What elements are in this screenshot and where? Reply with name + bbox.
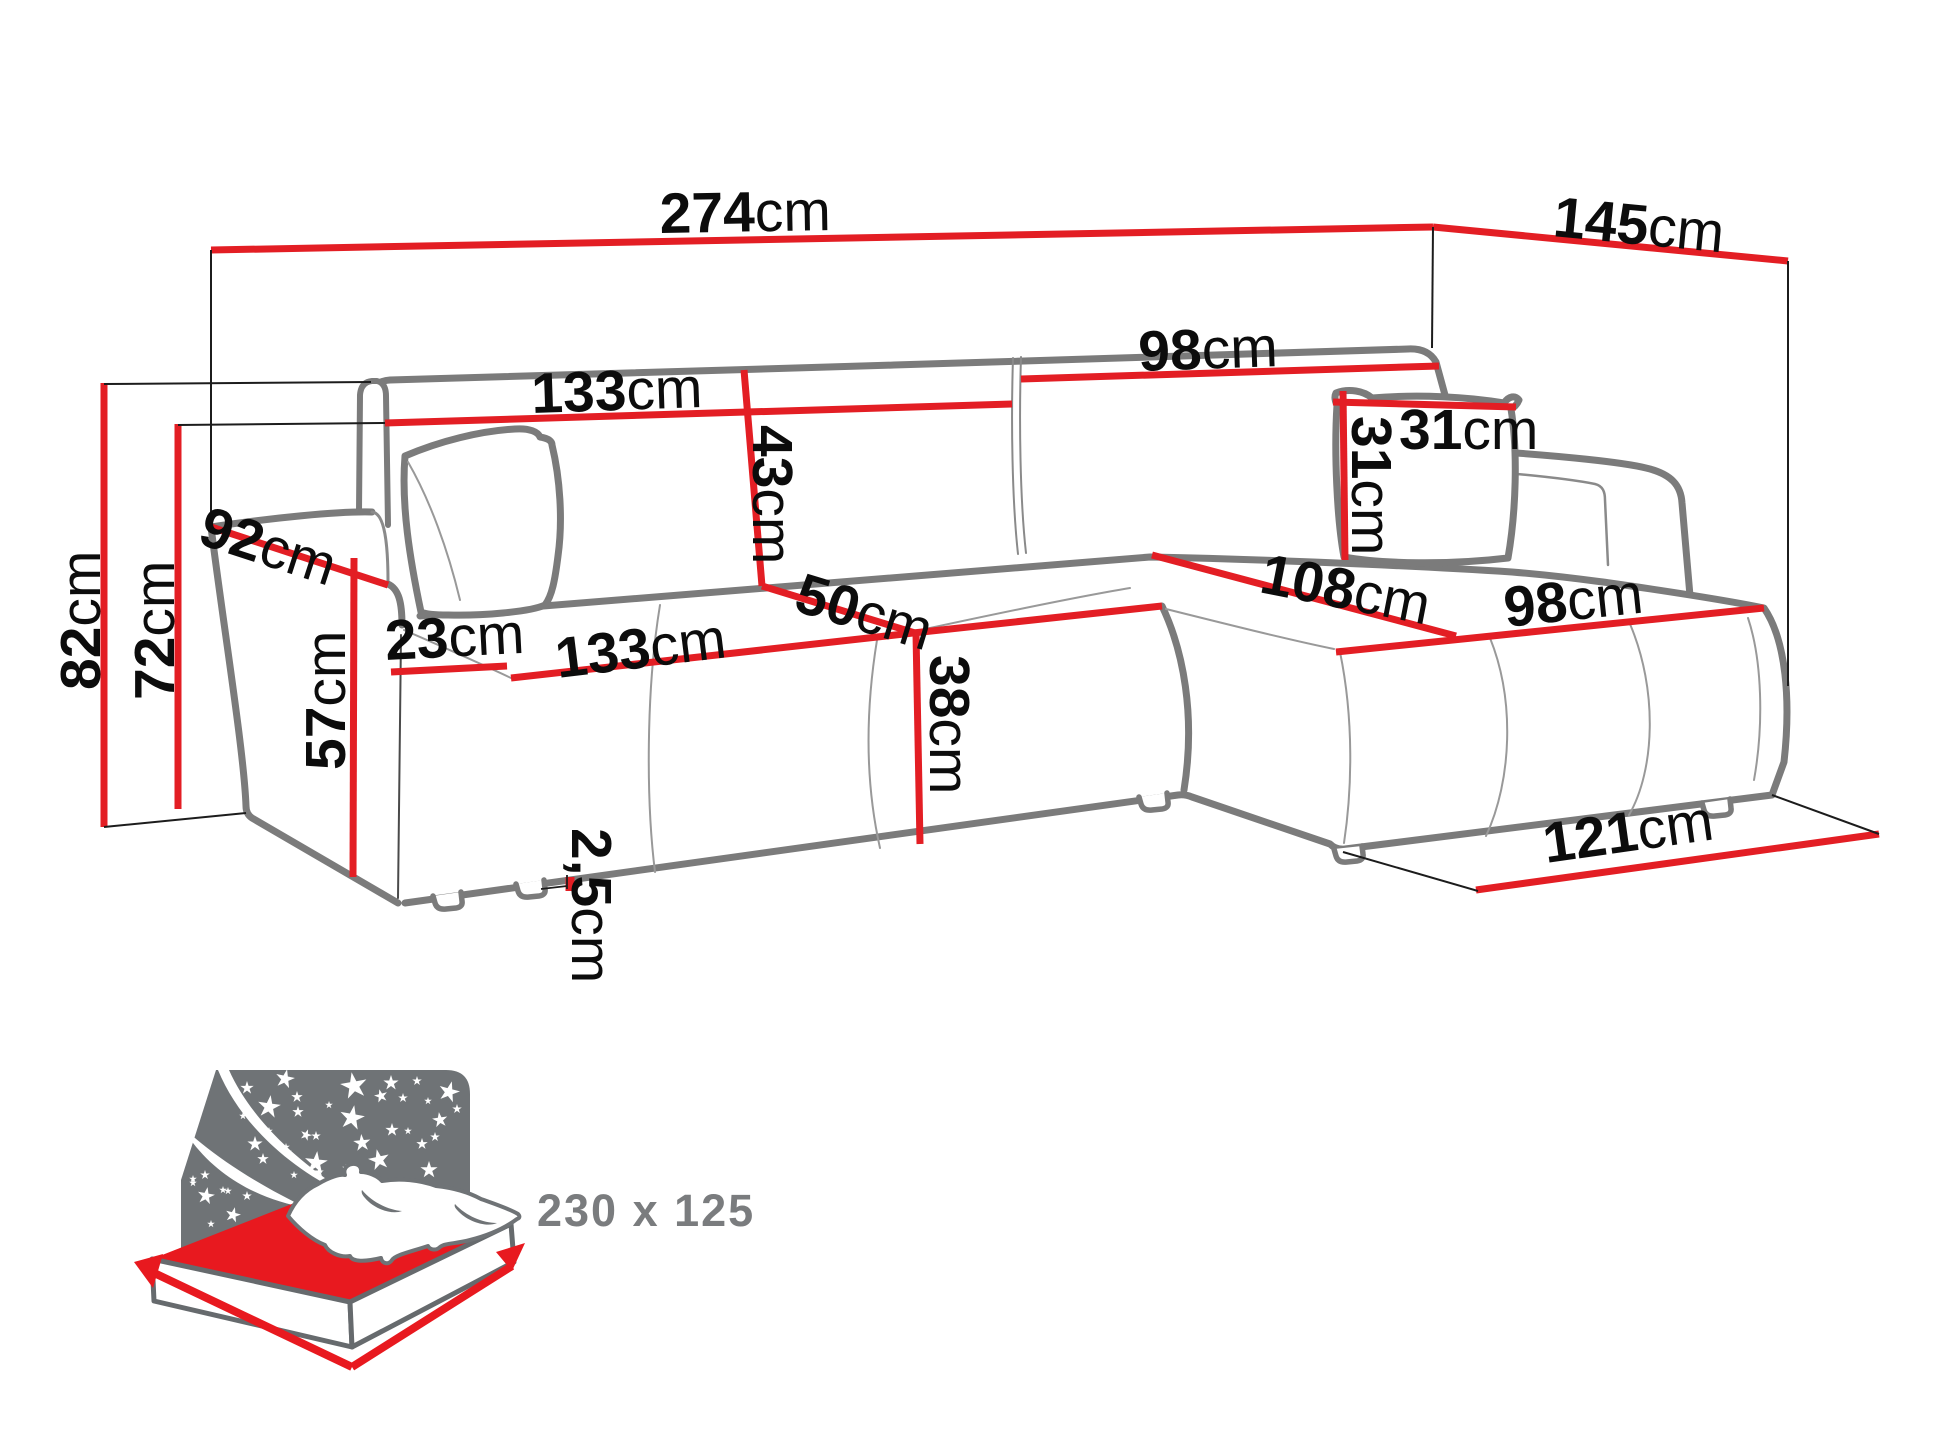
svg-text:230 x 125: 230 x 125	[537, 1185, 755, 1236]
svg-text:31cm: 31cm	[1339, 416, 1403, 555]
svg-text:38cm: 38cm	[917, 655, 981, 794]
svg-text:31cm: 31cm	[1399, 398, 1538, 462]
svg-text:72cm: 72cm	[123, 561, 187, 700]
svg-text:43cm: 43cm	[740, 425, 804, 564]
svg-text:2,5cm: 2,5cm	[559, 828, 623, 983]
svg-text:98cm: 98cm	[1137, 315, 1279, 384]
svg-text:82cm: 82cm	[49, 551, 113, 690]
svg-text:23cm: 23cm	[383, 602, 526, 673]
svg-text:57cm: 57cm	[294, 631, 358, 770]
svg-text:133cm: 133cm	[530, 356, 703, 426]
svg-text:274cm: 274cm	[659, 179, 831, 246]
